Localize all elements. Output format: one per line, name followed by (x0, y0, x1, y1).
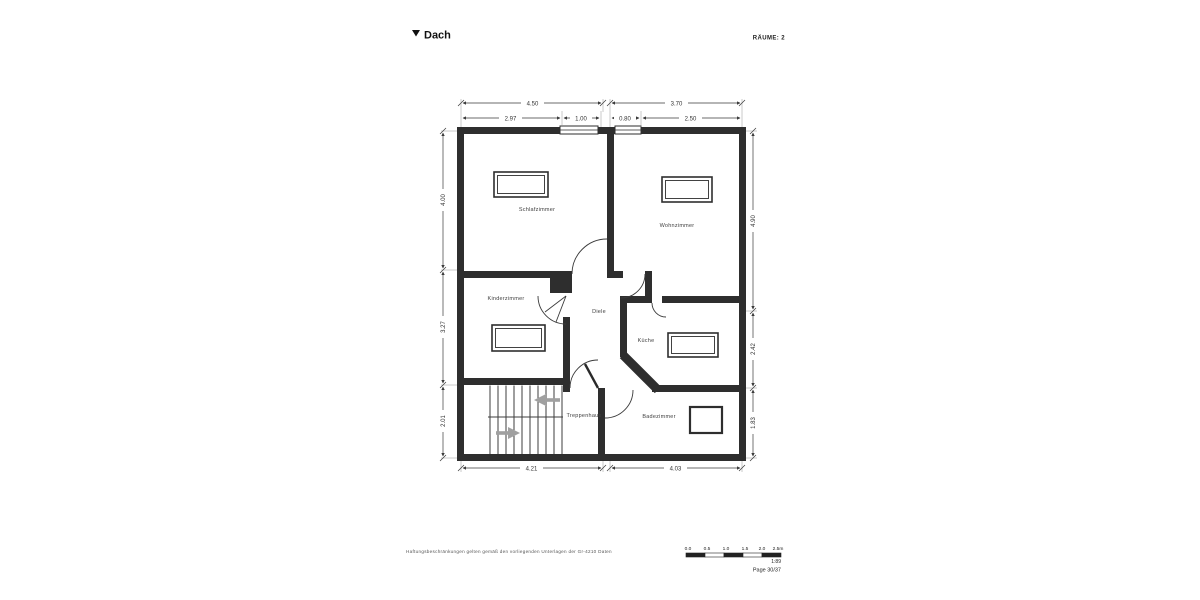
dimensions-right: 4.90 2.42 1.83 (746, 128, 758, 461)
wall-schlaf-wohn-divider (607, 127, 614, 276)
wall-kinderzimmer-bottom (457, 378, 570, 385)
window-schlafzimmer (560, 126, 598, 134)
wall-outer-left (457, 127, 464, 461)
stair-direction-arrow-down (496, 427, 520, 439)
wall-kueche-top-left (620, 296, 652, 303)
dim-top-inner-2: 1.00 (575, 117, 587, 123)
room-label-schlafzimmer: Schlafzimmer (519, 207, 555, 213)
room-label-treppenhaus: Treppenhaus (567, 413, 602, 419)
disclaimer-text: Haftungsbeschränkungen gelten gemäß den … (406, 549, 612, 554)
door-arc-treppenhaus (570, 360, 598, 388)
wall-kinderzimmer-right (563, 317, 570, 385)
scale-ratio: 1:89 (771, 559, 781, 565)
door-arc-badezimmer (605, 390, 633, 418)
room-label-diele: Diele (592, 309, 606, 315)
wall-diele-kueche-divider (620, 303, 627, 357)
document-page: Dach RÄUME: 2 (0, 0, 1200, 600)
door-arc-wohnzimmer (621, 274, 645, 298)
wall-outer-right (739, 127, 746, 461)
door-arc-kueche (652, 303, 666, 317)
scale-tick-0: 0.0 (685, 546, 692, 552)
room-label-kinderzimmer: Kinderzimmer (488, 296, 525, 302)
dim-top-inner-4: 2.50 (685, 117, 697, 123)
window-wohnzimmer (615, 126, 641, 134)
wall-outer-bottom (457, 454, 746, 461)
dim-top-inner-3: 0.80 (619, 117, 631, 123)
scale-tick-4: 2.0 (759, 546, 766, 552)
wall-schlafzimmer-bottom (457, 271, 553, 278)
page-title: Dach (424, 30, 451, 42)
dim-top-left: 4.50 (527, 102, 539, 108)
dimensions-top: 4.50 3.70 2.97 1.00 0.80 2.50 (458, 98, 745, 127)
roof-window-wohnzimmer (662, 177, 712, 202)
scale-tick-2: 1.0 (723, 546, 730, 552)
roof-window-schlafzimmer (494, 172, 548, 197)
scale-bar-segments (686, 553, 781, 557)
scale-bar: 0.0 0.5 1.0 1.5 2.0 2.5m 1:89 Page 30/37 (685, 546, 784, 574)
wall-kueche-top (662, 296, 739, 303)
roof-window-kinderzimmer (492, 325, 545, 351)
door-arc-kinderzimmer (538, 296, 566, 324)
floorplan-canvas: Dach RÄUME: 2 (0, 0, 1200, 600)
dim-right-2: 2.42 (751, 343, 757, 355)
dim-top-inner-1: 2.97 (505, 117, 517, 123)
room-label-badezimmer: Badezimmer (642, 414, 675, 420)
scale-tick-3: 1.5 (742, 546, 749, 552)
section-toggle-dach[interactable]: Dach (412, 30, 451, 42)
dim-bottom-left: 4.21 (526, 467, 538, 473)
staircase (488, 386, 563, 455)
room-label-wohnzimmer: Wohnzimmer (660, 223, 695, 229)
door-arc-schlafzimmer (572, 239, 607, 274)
scale-tick-1: 0.5 (704, 546, 711, 552)
collapse-triangle-icon (412, 30, 420, 37)
dim-right-1: 4.90 (751, 215, 757, 227)
wall-hall-bad-divider (598, 388, 605, 454)
dimensions-bottom: 4.21 4.03 (458, 461, 745, 473)
rooms-count-label: RÄUME: 2 (753, 35, 785, 42)
stair-treads (488, 386, 563, 455)
wall-stub-center (550, 271, 572, 293)
dim-left-3: 2.01 (441, 415, 447, 427)
dim-left-2: 3.27 (441, 321, 447, 333)
dimensions-left: 4.00 3.27 2.01 (439, 128, 458, 461)
wall-outer-top (457, 127, 746, 134)
dim-left-1: 4.00 (441, 194, 447, 206)
wall-badezimmer-top (652, 385, 739, 392)
page-number: Page 30/37 (753, 568, 781, 574)
scale-tick-5: 2.5m (773, 546, 784, 552)
wall-wohnzimmer-stub (607, 271, 623, 278)
wall-diagonal-kueche-bad (623, 355, 658, 390)
room-label-kueche: Küche (638, 338, 655, 344)
dim-top-right: 3.70 (671, 102, 683, 108)
roof-window-badezimmer (690, 407, 722, 433)
roof-window-kueche (668, 333, 718, 357)
dim-bottom-right: 4.03 (670, 467, 682, 473)
dim-right-3: 1.83 (751, 417, 757, 429)
